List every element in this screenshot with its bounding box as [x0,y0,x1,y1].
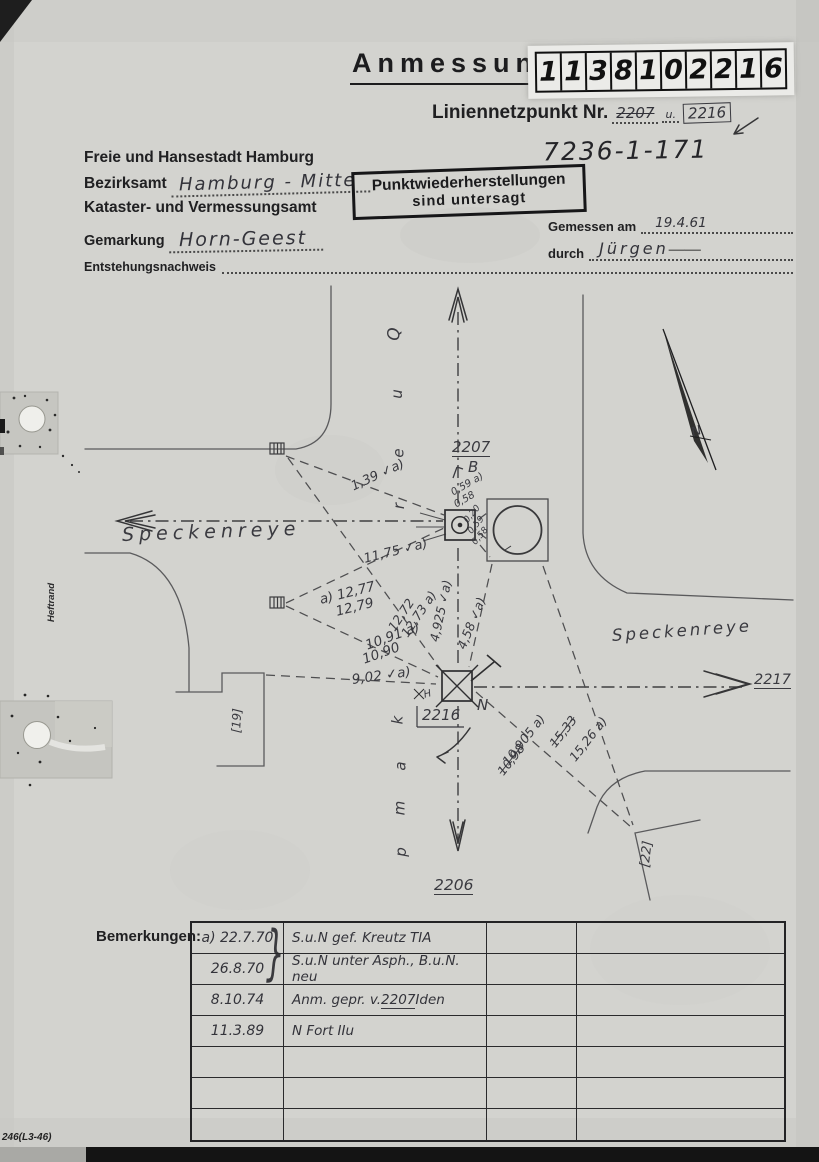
measurement-label: 9,02 ✓a) [351,664,412,688]
scan-edge-artifact [0,1147,86,1162]
new-point-number: 2216 [683,102,732,124]
digit-cell: 1 [537,53,563,90]
gemessen-row: Gemessen am 19.4.61 [548,214,793,234]
empty-cell [487,954,577,985]
parcel-label-left: [19] [229,708,244,733]
street-letter-r: r [390,503,408,509]
digit-cell: 6 [762,50,786,87]
street-letter-p: p [392,847,410,857]
point-2216-n-mark: N [477,696,488,714]
arrow-header-annotation [734,118,758,134]
point-label-2207: 2207 [452,438,490,457]
digit-cell: 1 [637,52,663,89]
gully-symbol-south [270,597,284,608]
form-number: 246(L3-46) [2,1132,51,1143]
office-line-3: Kataster- und Vermessungsamt [84,199,317,217]
empty-cell [284,1047,487,1078]
empty-cell [577,985,784,1016]
arrow-north [449,289,467,322]
heftrand-margin-label: Heftrand [46,583,57,622]
point-2216-h-mark: H [423,688,433,701]
old-point-number: 2207 [612,104,658,124]
gully-symbol-north [270,443,284,454]
empty-cell [487,1109,577,1140]
point-label-2217: 2217 [754,672,791,689]
digit-cell: 2 [687,51,713,88]
street-centerlines [130,312,742,844]
point-label-2216: 2216 [422,706,460,724]
empty-cell [577,1016,784,1047]
empty-cell [487,985,577,1016]
t-flag-mark [471,655,501,681]
remark-date: a) 22.7.70 [192,923,284,954]
empty-cell [487,1047,577,1078]
remark-text: N Fort IIu [284,1016,487,1047]
manhole-symbol [487,499,548,561]
north-arrow-icon [663,329,716,470]
remark-text-post: Iden [415,992,444,1008]
measurement-label: 4,925 ✓a) [427,579,455,644]
durch-row: durch Jürgen—— [548,239,793,261]
gemarkung-label: Gemarkung [84,233,165,249]
scan-corner-artifact [0,0,32,42]
empty-cell [577,1109,784,1140]
remarks-table: a) 22.7.70 S.u.N gef. Kreutz TIA 26.8.70… [190,921,786,1142]
punch-hole-top [0,392,80,473]
point-label-2206: 2206 [434,876,473,895]
remark-text-pre: Anm. gepr. v. [292,992,381,1008]
digit-cell: 2 [712,51,738,88]
digit-cell: 1 [562,53,588,90]
bezirksamt-value: Hamburg - Mitte [170,169,370,197]
digit-cell: 1 [737,51,763,88]
digit-cell: 3 [587,53,613,90]
remark-text: S.u.N unter Asph., B.u.N. neu [284,954,487,985]
street-letter-k: k [388,716,406,725]
prohibition-stamp: Punktwiederherstellungen sind untersagt [351,164,587,220]
digit-cell: 0 [662,52,688,89]
file-number: 7236-1-171 [543,135,709,167]
arrow-east [704,671,750,697]
empty-cell [284,1109,487,1140]
entstehungsnachweis-label: Entstehungsnachweis [84,260,216,274]
empty-cell [284,1078,487,1109]
point-number-sticker: 1 1 3 8 1 0 2 2 1 6 [528,42,795,99]
arrow-2216 [437,728,470,763]
empty-cell [487,1016,577,1047]
empty-cell [192,1078,284,1109]
empty-cell [577,954,784,985]
scan-bar-artifact [86,1147,819,1162]
office-line-1: Freie und Hansestadt Hamburg [84,149,314,167]
remark-text: Anm. gepr. v. 2207 Iden [284,985,487,1016]
street-name-east: Speckenreye [611,616,752,645]
empty-cell [577,1047,784,1078]
point-number-grid: 1 1 3 8 1 0 2 2 1 6 [535,48,788,93]
empty-cell [487,1078,577,1109]
bezirksamt-label: Bezirksamt [84,175,167,192]
street-name-west: Speckenreye [122,518,301,546]
gemarkung-row: Gemarkung Horn-Geest [84,228,323,252]
durch-label: durch [548,246,584,261]
remark-date: 26.8.70 [192,954,284,985]
remark-text: S.u.N gef. Kreutz TIA [284,923,487,954]
street-letter-m: m [390,801,408,816]
measurement-rays [266,456,633,827]
empty-cell [487,923,577,954]
remark-text-pointnumber: 2207 [381,992,415,1009]
connector-text: u. [662,108,678,123]
liniennetzpunkt-label: Liniennetzpunkt Nr. [432,102,608,123]
gemessen-value: 19.4.61 [641,215,707,231]
remark-date: 8.10.74 [192,985,284,1016]
digit-cell: 8 [612,52,638,89]
scanned-survey-document: Anmessung 1 1 3 8 1 0 2 2 1 6 Liniennetz… [0,0,819,1162]
parcel-label-right: [22] [638,840,656,868]
empty-cell [577,1078,784,1109]
empty-cell [192,1047,284,1078]
street-letter-u: u [388,389,406,399]
punch-hole-bottom [0,694,112,787]
north-arrow-letter: N [689,423,703,440]
empty-cell [577,923,784,954]
measurement-label: 11,75 ✓a) [362,536,429,566]
remark-date: 11.3.89 [192,1016,284,1047]
gemarkung-value: Horn-Geest [168,227,322,254]
durch-value: Jürgen [589,239,669,258]
street-letter-a: a [392,761,410,770]
measurement-label: 1,39 ✓a) [349,457,407,495]
street-letter-q: Q [385,327,405,340]
liniennetzpunkt-row: Liniennetzpunkt Nr. 2207 u. 2216 [432,102,731,124]
gemessen-label: Gemessen am [548,219,636,234]
measurement-label: 4,58 ✓a) [454,595,488,651]
remarks-label: Bemerkungen: [96,928,201,945]
empty-cell [192,1109,284,1140]
arrow-south [450,820,465,851]
building-left-outline [176,673,264,766]
bezirksamt-row: Bezirksamt Hamburg - Mitte [84,172,370,195]
